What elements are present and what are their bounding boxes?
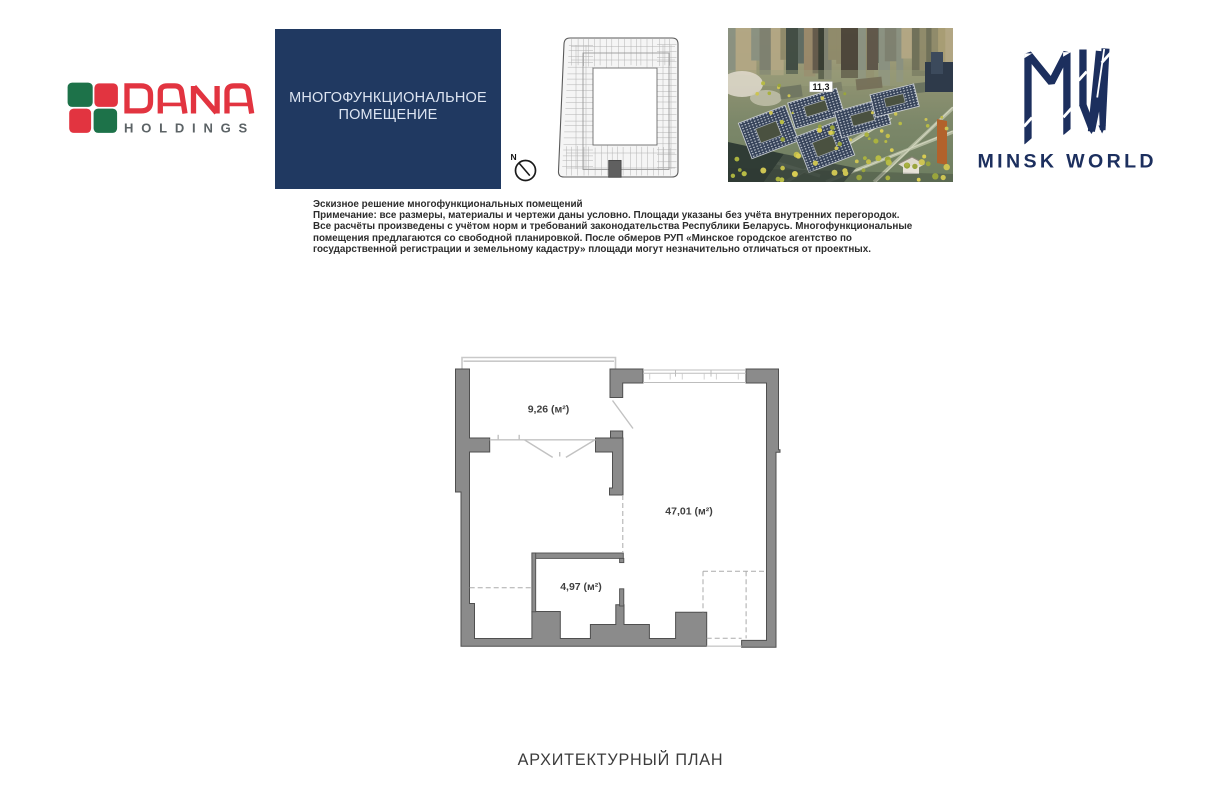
svg-text:N: N — [511, 152, 517, 162]
svg-text:4,97 (м²): 4,97 (м²) — [560, 581, 602, 593]
svg-text:HOLDINGS: HOLDINGS — [124, 121, 255, 136]
svg-text:47,01 (м²): 47,01 (м²) — [665, 506, 712, 518]
svg-text:9,26 (м²): 9,26 (м²) — [528, 404, 570, 416]
svg-text:11,3: 11,3 — [812, 82, 829, 92]
svg-text:MINSK WORLD: MINSK WORLD — [978, 151, 1157, 172]
